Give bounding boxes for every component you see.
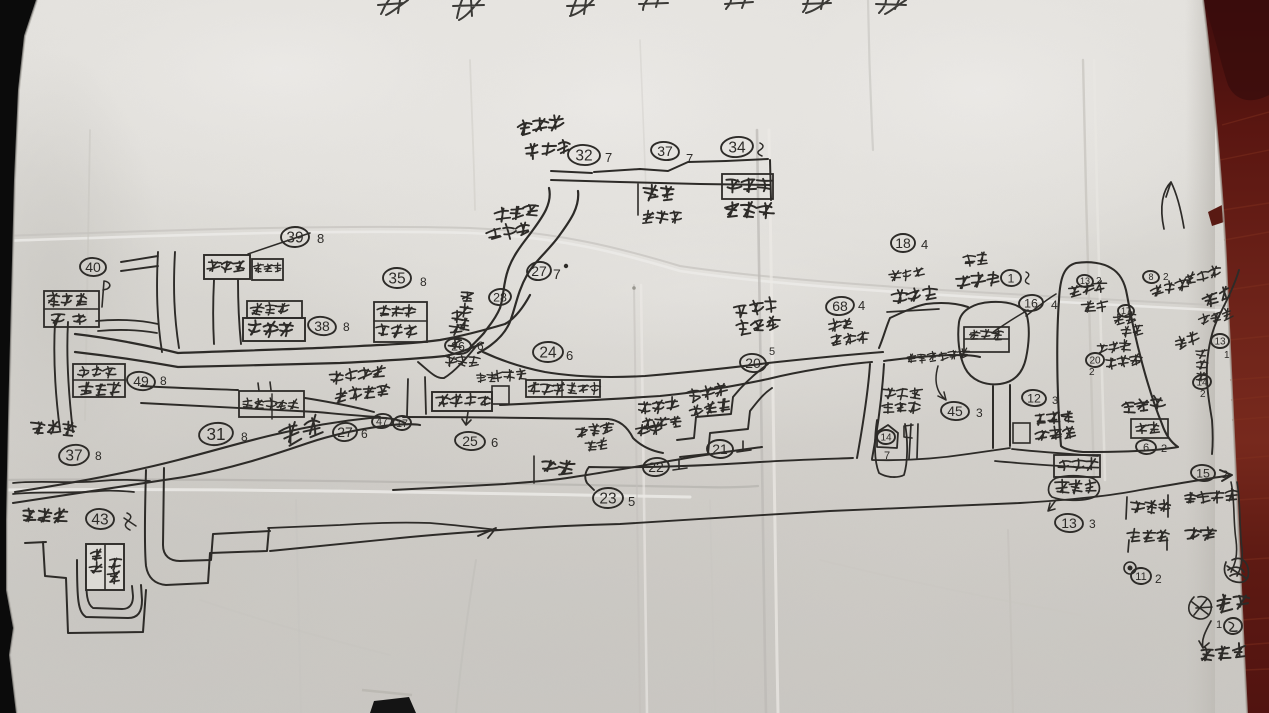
svg-text:37: 37 bbox=[65, 448, 82, 465]
svg-text:1: 1 bbox=[1216, 619, 1222, 631]
svg-text:4: 4 bbox=[858, 298, 865, 313]
svg-text:35: 35 bbox=[388, 271, 405, 288]
svg-text:21: 21 bbox=[712, 441, 728, 457]
svg-text:2: 2 bbox=[1096, 276, 1102, 287]
svg-text:47: 47 bbox=[376, 416, 388, 428]
svg-text:38: 38 bbox=[314, 318, 330, 334]
svg-text:13: 13 bbox=[1080, 276, 1090, 286]
svg-text:4: 4 bbox=[1051, 298, 1058, 312]
svg-text:7: 7 bbox=[686, 151, 693, 166]
svg-text:22: 22 bbox=[648, 459, 664, 475]
svg-text:20: 20 bbox=[745, 355, 761, 371]
svg-text:4: 4 bbox=[921, 237, 928, 252]
svg-text:26: 26 bbox=[451, 340, 465, 354]
svg-text:6: 6 bbox=[566, 348, 573, 363]
svg-text:11: 11 bbox=[1135, 571, 1146, 583]
svg-text:8: 8 bbox=[343, 320, 350, 334]
svg-text:1: 1 bbox=[1224, 350, 1230, 361]
svg-text:37: 37 bbox=[657, 143, 673, 159]
svg-text:43: 43 bbox=[91, 512, 108, 529]
svg-text:8: 8 bbox=[241, 430, 248, 444]
svg-text:7: 7 bbox=[884, 450, 890, 462]
svg-text:27: 27 bbox=[337, 424, 353, 440]
svg-text:17: 17 bbox=[396, 418, 408, 430]
svg-text:8: 8 bbox=[317, 231, 324, 246]
svg-text:6: 6 bbox=[491, 435, 498, 450]
svg-text:2: 2 bbox=[1155, 572, 1162, 586]
svg-text:40: 40 bbox=[85, 259, 101, 275]
svg-text:2: 2 bbox=[1089, 367, 1095, 378]
svg-text:5: 5 bbox=[628, 494, 635, 509]
svg-text:45: 45 bbox=[947, 403, 963, 419]
svg-text:7: 7 bbox=[605, 150, 612, 165]
svg-text:68: 68 bbox=[832, 298, 848, 314]
svg-text:2: 2 bbox=[1161, 443, 1167, 455]
svg-text:16: 16 bbox=[1024, 297, 1038, 311]
svg-text:12: 12 bbox=[1027, 392, 1041, 406]
svg-text:7: 7 bbox=[553, 266, 561, 282]
svg-text:14: 14 bbox=[1196, 378, 1208, 389]
svg-text:6: 6 bbox=[477, 339, 484, 353]
svg-text:25: 25 bbox=[462, 433, 478, 449]
svg-text:2: 2 bbox=[1222, 469, 1228, 481]
svg-text:17: 17 bbox=[1121, 306, 1131, 316]
svg-text:8: 8 bbox=[95, 449, 102, 463]
svg-text:3: 3 bbox=[976, 406, 983, 420]
svg-text:24: 24 bbox=[539, 345, 557, 362]
svg-text:23: 23 bbox=[599, 491, 616, 508]
svg-text:15: 15 bbox=[1196, 467, 1210, 481]
svg-text:8: 8 bbox=[160, 374, 167, 388]
svg-text:14: 14 bbox=[880, 433, 892, 444]
svg-text:32: 32 bbox=[575, 148, 592, 165]
svg-text:2: 2 bbox=[1200, 389, 1206, 400]
svg-text:6: 6 bbox=[1143, 442, 1149, 454]
svg-text:6: 6 bbox=[361, 427, 368, 441]
svg-text:1: 1 bbox=[1008, 272, 1015, 286]
svg-text:28: 28 bbox=[493, 291, 507, 305]
svg-text:8: 8 bbox=[1148, 272, 1153, 282]
svg-text:39: 39 bbox=[286, 230, 303, 247]
svg-text:13: 13 bbox=[1214, 337, 1226, 348]
svg-text:3: 3 bbox=[1089, 517, 1096, 531]
svg-text:34: 34 bbox=[728, 140, 746, 157]
svg-text:18: 18 bbox=[895, 235, 911, 251]
svg-text:49: 49 bbox=[133, 373, 149, 389]
svg-text:13: 13 bbox=[1061, 515, 1077, 531]
svg-text:20: 20 bbox=[1089, 356, 1101, 367]
svg-text:3: 3 bbox=[1052, 395, 1058, 407]
svg-text:5: 5 bbox=[769, 346, 775, 358]
svg-text:8: 8 bbox=[420, 275, 427, 289]
svg-text:27: 27 bbox=[531, 263, 547, 279]
svg-text:31: 31 bbox=[206, 425, 225, 444]
svg-text:2: 2 bbox=[1163, 272, 1169, 283]
